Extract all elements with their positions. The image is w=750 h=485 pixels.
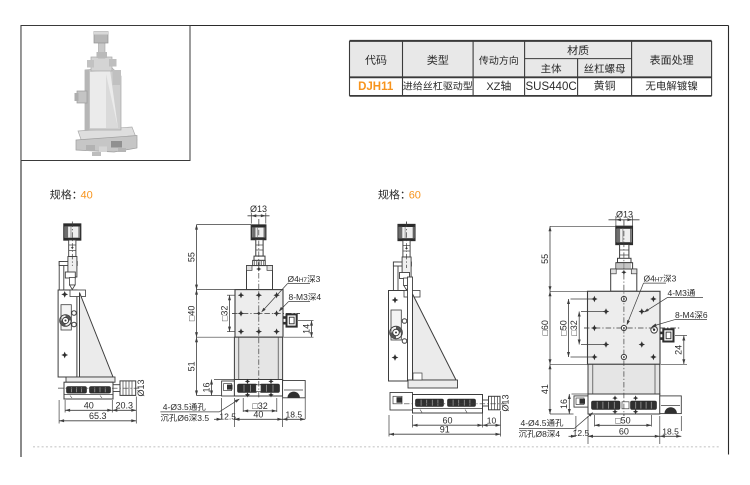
svg-text:Ø4: Ø4 [644,274,656,284]
svg-text:18.5: 18.5 [662,426,679,436]
svg-text:51: 51 [186,361,196,371]
svg-text:H7: H7 [655,277,664,284]
svg-text:4: 4 [555,429,560,439]
svg-text:40: 40 [81,190,93,202]
svg-text:Ø8: Ø8 [536,429,548,439]
svg-text:91: 91 [440,424,450,434]
svg-text:□32: □32 [219,306,229,321]
svg-text:60: 60 [619,426,629,436]
svg-text:41: 41 [540,384,550,394]
svg-text:4-Ø4.5: 4-Ø4.5 [521,418,547,428]
svg-text:65.3: 65.3 [89,411,107,421]
svg-text:□50: □50 [615,415,630,425]
svg-text:Ø4: Ø4 [288,274,300,284]
svg-text:18.5: 18.5 [286,409,303,419]
svg-text:3: 3 [316,274,321,284]
svg-text:4: 4 [316,292,321,302]
svg-text:24: 24 [674,345,684,355]
svg-text:3.5: 3.5 [197,413,209,423]
svg-text:Ø13: Ø13 [250,204,267,214]
svg-text:55: 55 [186,252,196,262]
svg-text:3: 3 [672,274,677,284]
svg-text:XZ: XZ [486,81,500,93]
svg-text:16: 16 [201,382,211,392]
svg-text:12.5: 12.5 [219,411,236,421]
svg-text:8-M4: 8-M4 [675,310,695,320]
svg-text:Ø6: Ø6 [177,413,189,423]
svg-text:□50: □50 [558,320,568,335]
svg-text:14: 14 [301,324,311,334]
svg-text:Ø13: Ø13 [616,209,633,219]
svg-text:40: 40 [84,400,94,410]
svg-text:□40: □40 [186,306,196,321]
svg-text:12.5: 12.5 [573,428,590,438]
svg-text:6: 6 [703,310,708,320]
svg-text:4-Ø3.5: 4-Ø3.5 [163,402,189,412]
svg-text:□32: □32 [569,320,579,335]
svg-text:40: 40 [253,409,263,419]
svg-text:60: 60 [409,190,421,202]
svg-text:8-M3: 8-M3 [289,292,309,302]
svg-text:10: 10 [487,415,497,425]
svg-text:16: 16 [559,399,569,409]
svg-text:□60: □60 [540,320,550,335]
svg-text:DJH11: DJH11 [358,81,394,93]
svg-text:55: 55 [540,254,550,264]
svg-text:4-M3: 4-M3 [668,288,688,298]
svg-text:H7: H7 [299,277,308,284]
svg-text:Ø13: Ø13 [501,394,511,411]
svg-text:20.3: 20.3 [116,400,134,410]
svg-text:SUS440C: SUS440C [526,81,577,93]
